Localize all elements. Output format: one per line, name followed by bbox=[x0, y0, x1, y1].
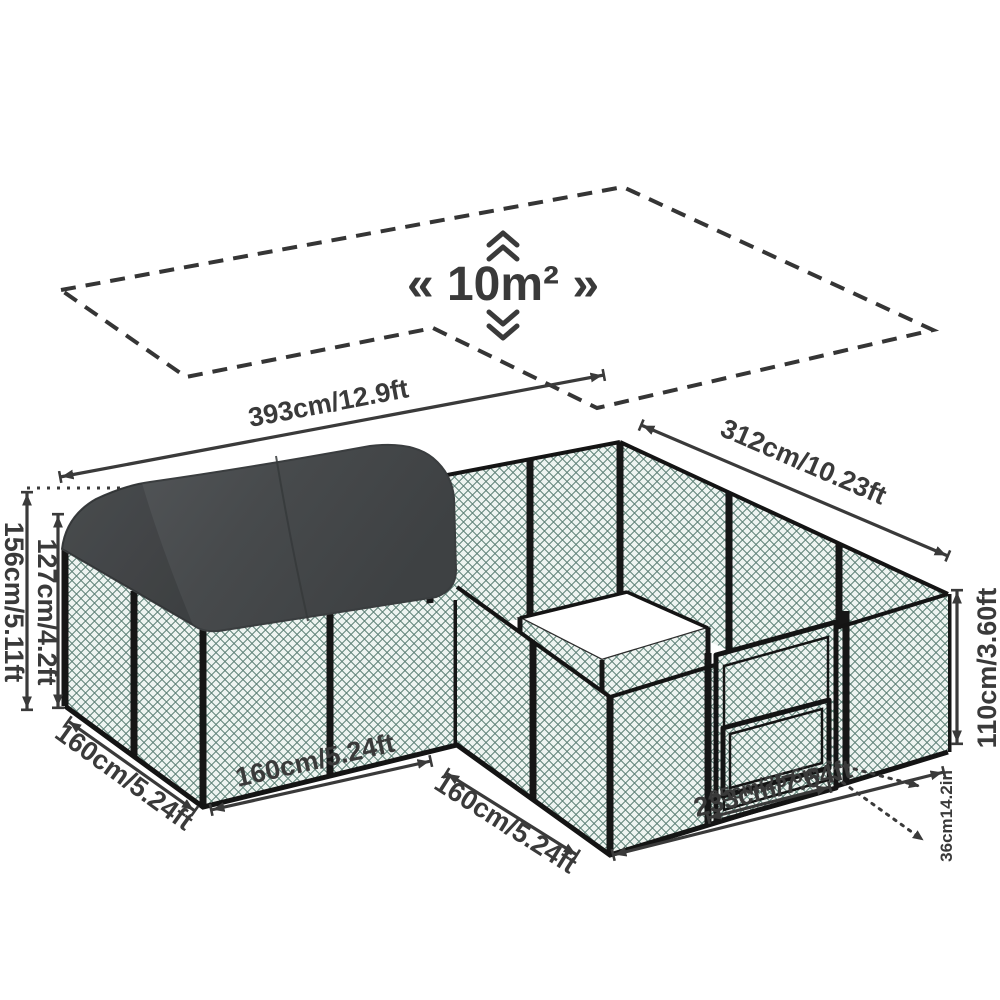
dim-label-peak-height: 156cm/5.11ft bbox=[0, 522, 29, 683]
area-label: « 10m² » bbox=[407, 258, 599, 311]
dim-label-covered-wall-height: 127cm/4.2ft bbox=[32, 538, 62, 685]
kennel-structure bbox=[62, 442, 948, 855]
expand-up-icon bbox=[489, 233, 517, 259]
dim-label-dog-door-height: 36cm14.2in bbox=[937, 770, 956, 862]
dim-label-fence-height: 110cm/3.60ft bbox=[972, 588, 1000, 749]
diagram-svg: « 10m² » bbox=[0, 0, 1000, 1000]
dim-label-total-width: 393cm/12.9ft bbox=[246, 373, 411, 433]
kennel-dimension-diagram: « 10m² » bbox=[0, 0, 1000, 1000]
expand-down-icon bbox=[489, 312, 517, 338]
